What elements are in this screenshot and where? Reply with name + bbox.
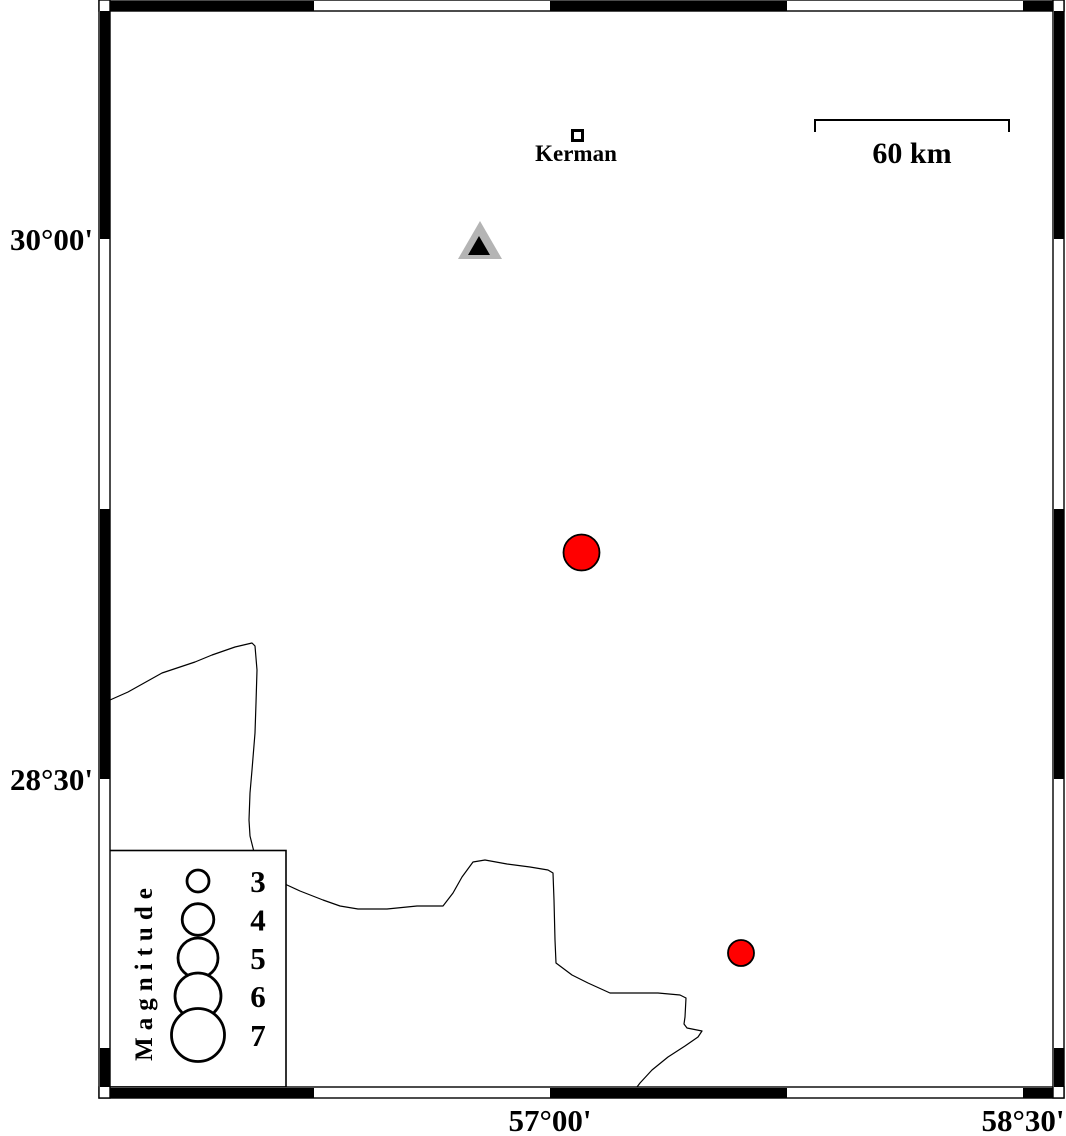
lat-label-28-30: 28°30' (10, 762, 93, 797)
magnitude-legend: Magnitude 34567 (109, 851, 287, 1088)
lon-label-58-30: 58°30' (981, 1103, 1064, 1136)
lat-label-30-00: 30°00' (10, 222, 93, 257)
frame-segment (1023, 1088, 1053, 1098)
legend-label-mag-5: 5 (250, 941, 266, 976)
legend-label-mag-6: 6 (250, 979, 266, 1014)
legend-title: Magnitude (131, 881, 158, 1061)
scale-bar-label: 60 km (872, 137, 951, 170)
earthquake-circle-1 (564, 535, 600, 571)
frame-segment (1023, 1, 1053, 11)
frame-segment (1054, 1048, 1064, 1087)
legend-label-mag-3: 3 (250, 864, 266, 899)
frame-segment (1054, 509, 1064, 779)
frame-segment (100, 11, 110, 239)
city-label: Kerman (535, 141, 617, 166)
legend-circle-mag-3 (187, 870, 209, 892)
legend-circle-mag-7 (172, 1009, 225, 1062)
city-square-icon (573, 131, 583, 141)
frame-segment (110, 1, 314, 11)
earthquake-circle-2 (728, 940, 754, 966)
frame-segment (550, 1, 787, 11)
frame-segment (550, 1088, 787, 1098)
frame-segment (100, 509, 110, 779)
frame-segment (100, 1048, 110, 1087)
lon-label-57-00: 57°00' (508, 1103, 591, 1136)
frame-segment (1054, 11, 1064, 239)
legend-label-mag-4: 4 (250, 903, 266, 938)
frame-segment (110, 1088, 314, 1098)
seismicity-map: Magnitude 34567 Kerman 60 km (0, 0, 1066, 1136)
legend-label-mag-7: 7 (250, 1018, 266, 1053)
legend-circle-mag-4 (182, 904, 214, 936)
